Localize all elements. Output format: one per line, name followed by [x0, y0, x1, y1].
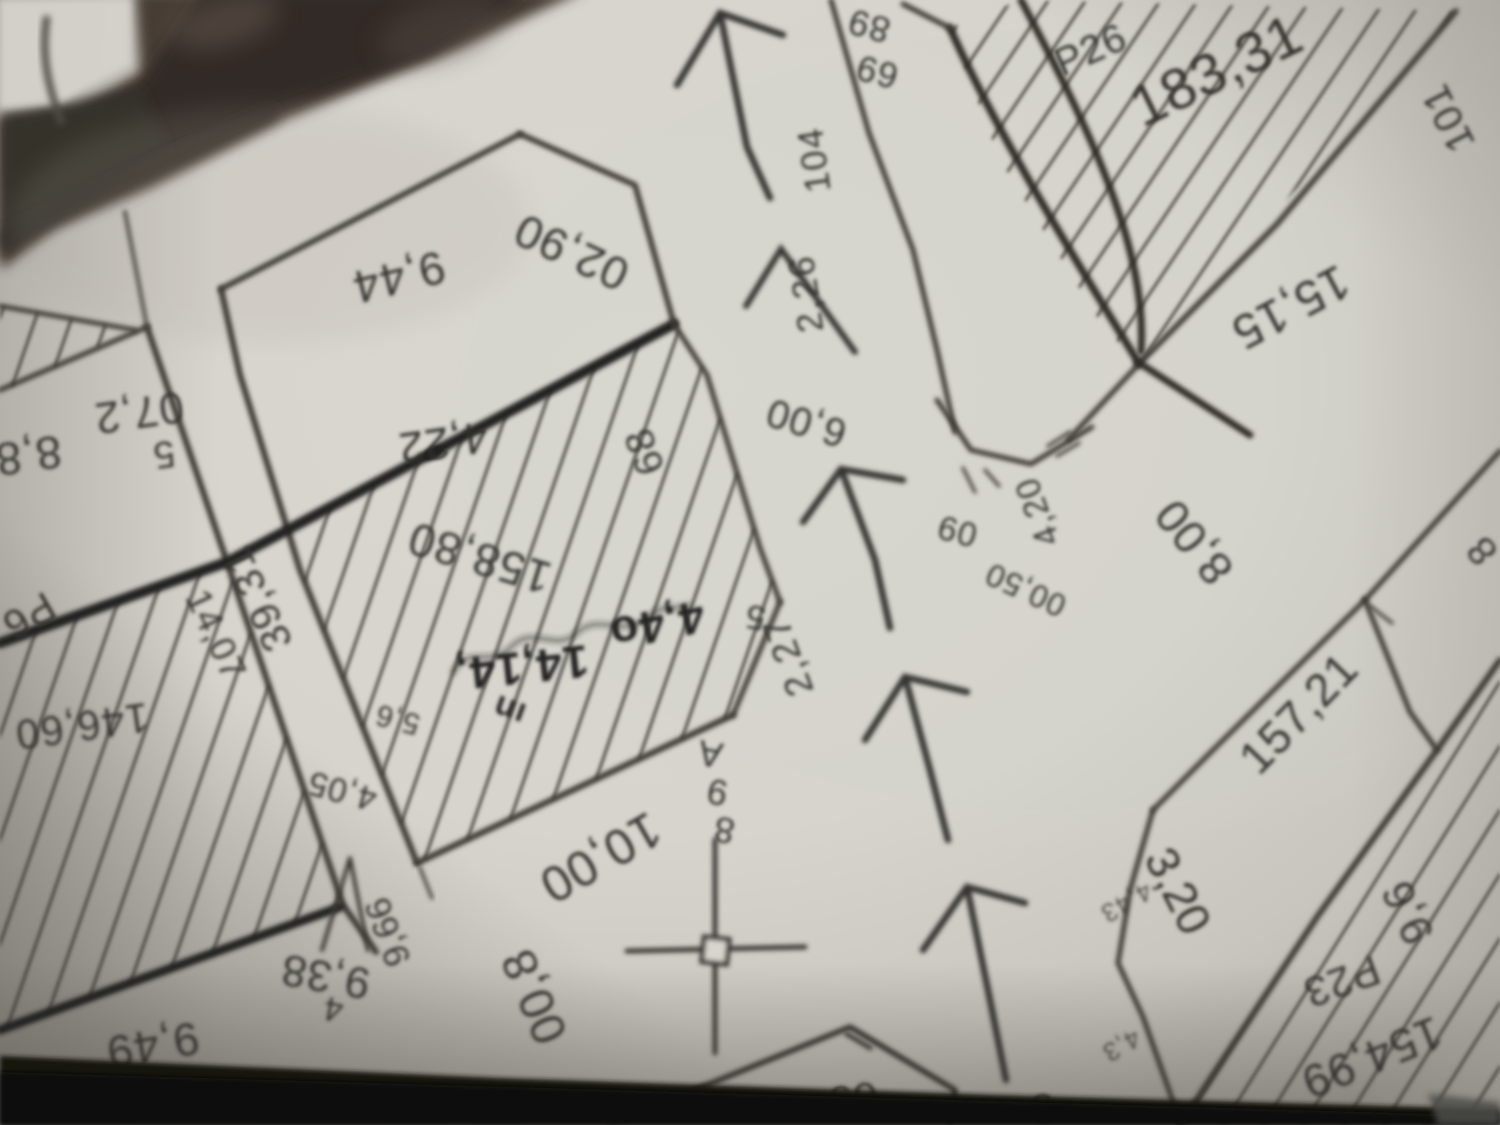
svg-text:8,8: 8,8: [0, 425, 65, 486]
